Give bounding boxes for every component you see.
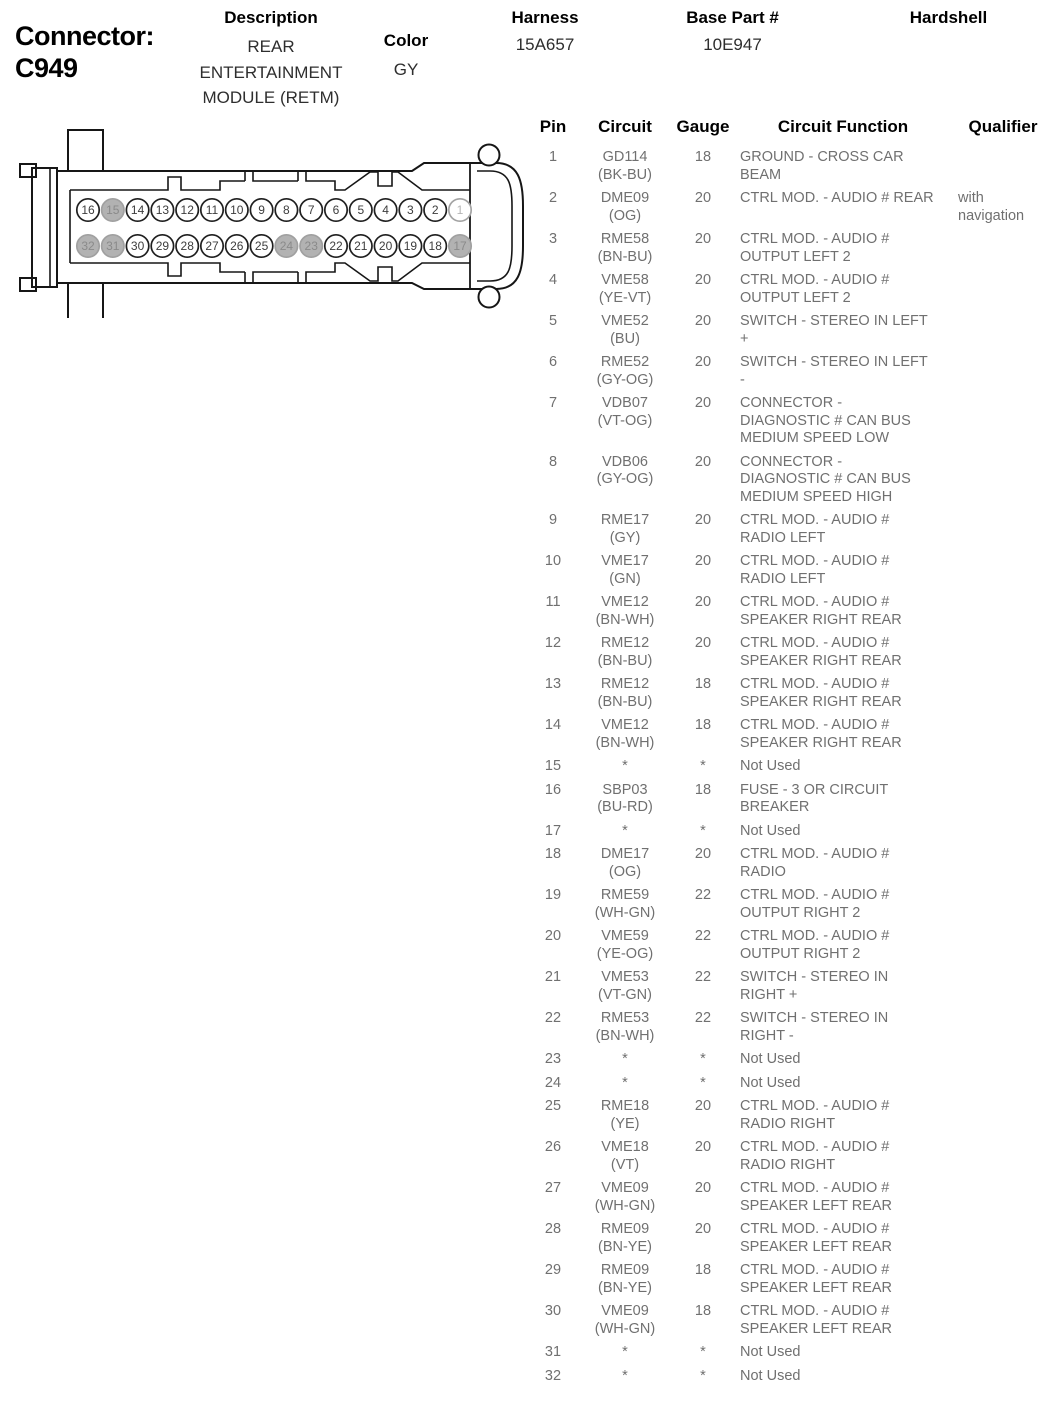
pin-cell: 27 bbox=[528, 1177, 578, 1218]
function-cell: CONNECTOR - DIAGNOSTIC # CAN BUS MEDIUM … bbox=[734, 451, 952, 510]
qualifier-cell bbox=[952, 310, 1054, 351]
gauge-cell: * bbox=[672, 1048, 734, 1072]
gauge-cell: 20 bbox=[672, 269, 734, 310]
function-cell: CTRL MOD. - AUDIO # SPEAKER RIGHT REAR bbox=[734, 714, 952, 755]
qualifier-cell bbox=[952, 1136, 1054, 1177]
function-cell: FUSE - 3 OR CIRCUIT BREAKER bbox=[734, 779, 952, 820]
gauge-cell: 18 bbox=[672, 714, 734, 755]
gauge-cell: 20 bbox=[672, 1177, 734, 1218]
pin-7-label: 7 bbox=[308, 203, 315, 217]
connector-drawing: 1615141312111098765432132313029282726252… bbox=[0, 118, 530, 320]
gauge-cell: 18 bbox=[672, 146, 734, 187]
table-row: 24**Not Used bbox=[528, 1072, 1054, 1096]
table-header-row: Pin Circuit Gauge Circuit Function Quali… bbox=[528, 117, 1054, 146]
table-row: 28RME09 (BN-YE)20CTRL MOD. - AUDIO # SPE… bbox=[528, 1218, 1054, 1259]
function-cell: CTRL MOD. - AUDIO # RADIO bbox=[734, 843, 952, 884]
table-row: 30VME09 (WH-GN)18CTRL MOD. - AUDIO # SPE… bbox=[528, 1300, 1054, 1341]
qualifier-cell bbox=[952, 591, 1054, 632]
pin-cell: 6 bbox=[528, 351, 578, 392]
gauge-cell: 20 bbox=[672, 1095, 734, 1136]
pin-cell: 7 bbox=[528, 392, 578, 451]
pin-29-label: 29 bbox=[156, 239, 170, 253]
pin-cell: 32 bbox=[528, 1365, 578, 1389]
pin-cell: 20 bbox=[528, 925, 578, 966]
function-cell: CTRL MOD. - AUDIO # OUTPUT LEFT 2 bbox=[734, 228, 952, 269]
qualifier-cell bbox=[952, 1218, 1054, 1259]
pin-cell: 15 bbox=[528, 755, 578, 779]
table-row: 17**Not Used bbox=[528, 820, 1054, 844]
circuit-cell: * bbox=[578, 1341, 672, 1365]
pin-6-label: 6 bbox=[333, 203, 340, 217]
pin-3-label: 3 bbox=[407, 203, 414, 217]
circuit-cell: VME17 (GN) bbox=[578, 550, 672, 591]
pin-cell: 23 bbox=[528, 1048, 578, 1072]
lower-tab bbox=[68, 283, 103, 318]
circuit-cell: VME09 (WH-GN) bbox=[578, 1300, 672, 1341]
gauge-cell: 20 bbox=[672, 228, 734, 269]
pin-26-label: 26 bbox=[230, 239, 244, 253]
gauge-cell: * bbox=[672, 755, 734, 779]
table-row: 8VDB06 (GY-OG)20CONNECTOR - DIAGNOSTIC #… bbox=[528, 451, 1054, 510]
qualifier-cell bbox=[952, 925, 1054, 966]
gauge-cell: 20 bbox=[672, 392, 734, 451]
function-cell: CONNECTOR - DIAGNOSTIC # CAN BUS MEDIUM … bbox=[734, 392, 952, 451]
gauge-cell: 22 bbox=[672, 1007, 734, 1048]
function-cell: SWITCH - STEREO IN LEFT + bbox=[734, 310, 952, 351]
table-row: 16SBP03 (BU-RD)18FUSE - 3 OR CIRCUIT BRE… bbox=[528, 779, 1054, 820]
pin-24-label: 24 bbox=[280, 239, 294, 253]
pin-8-label: 8 bbox=[283, 203, 290, 217]
table-row: 6RME52 (GY-OG)20SWITCH - STEREO IN LEFT … bbox=[528, 351, 1054, 392]
circuit-cell: * bbox=[578, 1072, 672, 1096]
qualifier-cell bbox=[952, 509, 1054, 550]
table-row: 10VME17 (GN)20CTRL MOD. - AUDIO # RADIO … bbox=[528, 550, 1054, 591]
pin-cell: 28 bbox=[528, 1218, 578, 1259]
connector-outline bbox=[20, 130, 523, 318]
function-cell: CTRL MOD. - AUDIO # SPEAKER RIGHT REAR bbox=[734, 673, 952, 714]
color-value: GY bbox=[376, 60, 436, 80]
inner-top-edge bbox=[70, 171, 470, 190]
description-label: Description bbox=[176, 8, 366, 28]
function-cell: CTRL MOD. - AUDIO # RADIO RIGHT bbox=[734, 1136, 952, 1177]
qualifier-cell bbox=[952, 1007, 1054, 1048]
circuit-cell: RME58 (BN-BU) bbox=[578, 228, 672, 269]
table-row: 22RME53 (BN-WH)22SWITCH - STEREO IN RIGH… bbox=[528, 1007, 1054, 1048]
table-row: 9RME17 (GY)20CTRL MOD. - AUDIO # RADIO L… bbox=[528, 509, 1054, 550]
circuit-cell: * bbox=[578, 1365, 672, 1389]
circuit-cell: RME53 (BN-WH) bbox=[578, 1007, 672, 1048]
gauge-cell: 20 bbox=[672, 351, 734, 392]
table-row: 29RME09 (BN-YE)18CTRL MOD. - AUDIO # SPE… bbox=[528, 1259, 1054, 1300]
qualifier-cell bbox=[952, 351, 1054, 392]
function-cell: CTRL MOD. - AUDIO # RADIO LEFT bbox=[734, 509, 952, 550]
function-cell: Not Used bbox=[734, 1341, 952, 1365]
pin-32-label: 32 bbox=[81, 239, 95, 253]
pin-cell: 9 bbox=[528, 509, 578, 550]
pin-cell: 18 bbox=[528, 843, 578, 884]
circuit-cell: VME52 (BU) bbox=[578, 310, 672, 351]
pin-16-label: 16 bbox=[81, 203, 95, 217]
table-row: 13RME12 (BN-BU)18CTRL MOD. - AUDIO # SPE… bbox=[528, 673, 1054, 714]
table-row: 23**Not Used bbox=[528, 1048, 1054, 1072]
function-cell: CTRL MOD. - AUDIO # SPEAKER LEFT REAR bbox=[734, 1300, 952, 1341]
qualifier-cell bbox=[952, 1072, 1054, 1096]
qualifier-cell bbox=[952, 1095, 1054, 1136]
gauge-cell: 18 bbox=[672, 1259, 734, 1300]
gauge-cell: 20 bbox=[672, 632, 734, 673]
pin-cell: 1 bbox=[528, 146, 578, 187]
gauge-cell: 20 bbox=[672, 310, 734, 351]
table-row: 32**Not Used bbox=[528, 1365, 1054, 1389]
circuit-cell: RME09 (BN-YE) bbox=[578, 1218, 672, 1259]
qualifier-cell bbox=[952, 451, 1054, 510]
pin-23-label: 23 bbox=[305, 239, 319, 253]
function-cell: Not Used bbox=[734, 1072, 952, 1096]
function-cell: CTRL MOD. - AUDIO # REAR bbox=[734, 187, 952, 228]
table-row: 19RME59 (WH-GN)22CTRL MOD. - AUDIO # OUT… bbox=[528, 884, 1054, 925]
pin-cell: 12 bbox=[528, 632, 578, 673]
gauge-cell: * bbox=[672, 1365, 734, 1389]
qualifier-cell bbox=[952, 269, 1054, 310]
gauge-cell: 20 bbox=[672, 591, 734, 632]
circuit-cell: VDB06 (GY-OG) bbox=[578, 451, 672, 510]
qualifier-cell bbox=[952, 146, 1054, 187]
qualifier-cell bbox=[952, 1259, 1054, 1300]
base-part-value: 10E947 bbox=[660, 35, 805, 55]
function-cell: SWITCH - STEREO IN RIGHT + bbox=[734, 966, 952, 1007]
pin-cell: 22 bbox=[528, 1007, 578, 1048]
circuit-cell: VME59 (YE-OG) bbox=[578, 925, 672, 966]
table-row: 4VME58 (YE-VT)20CTRL MOD. - AUDIO # OUTP… bbox=[528, 269, 1054, 310]
pin-field: 1615141312111098765432132313029282726252… bbox=[77, 199, 471, 257]
function-cell: CTRL MOD. - AUDIO # OUTPUT LEFT 2 bbox=[734, 269, 952, 310]
col-header-circuit: Circuit bbox=[578, 117, 672, 146]
gauge-cell: * bbox=[672, 820, 734, 844]
qualifier-cell bbox=[952, 1048, 1054, 1072]
pin-28-label: 28 bbox=[181, 239, 195, 253]
gauge-cell: 18 bbox=[672, 673, 734, 714]
pin-cell: 14 bbox=[528, 714, 578, 755]
qualifier-cell bbox=[952, 966, 1054, 1007]
table-row: 15**Not Used bbox=[528, 755, 1054, 779]
circuit-cell: RME59 (WH-GN) bbox=[578, 884, 672, 925]
circuit-cell: GD114 (BK-BU) bbox=[578, 146, 672, 187]
qualifier-cell bbox=[952, 843, 1054, 884]
gauge-cell: * bbox=[672, 1341, 734, 1365]
pin-cell: 17 bbox=[528, 820, 578, 844]
circuit-cell: VME53 (VT-GN) bbox=[578, 966, 672, 1007]
col-header-qualifier: Qualifier bbox=[952, 117, 1054, 146]
pin-cell: 24 bbox=[528, 1072, 578, 1096]
circuit-cell: * bbox=[578, 755, 672, 779]
left-bar bbox=[32, 168, 57, 287]
function-cell: CTRL MOD. - AUDIO # SPEAKER LEFT REAR bbox=[734, 1218, 952, 1259]
pin-21-label: 21 bbox=[354, 239, 368, 253]
qualifier-cell bbox=[952, 673, 1054, 714]
table-row: 5VME52 (BU)20SWITCH - STEREO IN LEFT + bbox=[528, 310, 1054, 351]
table-row: 31**Not Used bbox=[528, 1341, 1054, 1365]
qualifier-cell bbox=[952, 1177, 1054, 1218]
pin-15-label: 15 bbox=[106, 203, 120, 217]
pin-31-label: 31 bbox=[106, 239, 120, 253]
gauge-cell: 20 bbox=[672, 451, 734, 510]
pin-cell: 8 bbox=[528, 451, 578, 510]
gauge-cell: 18 bbox=[672, 779, 734, 820]
pin-cell: 26 bbox=[528, 1136, 578, 1177]
qualifier-cell bbox=[952, 820, 1054, 844]
pin-2-label: 2 bbox=[432, 203, 439, 217]
table-row: 18DME17 (OG)20CTRL MOD. - AUDIO # RADIO bbox=[528, 843, 1054, 884]
gauge-cell: 22 bbox=[672, 925, 734, 966]
connector-sheet: Connector: C949 Description REAR ENTERTA… bbox=[0, 0, 1054, 1406]
qualifier-cell bbox=[952, 1300, 1054, 1341]
pin-19-label: 19 bbox=[404, 239, 418, 253]
pin-cell: 11 bbox=[528, 591, 578, 632]
table-row: 12RME12 (BN-BU)20CTRL MOD. - AUDIO # SPE… bbox=[528, 632, 1054, 673]
body-outline bbox=[57, 163, 523, 289]
pin-20-label: 20 bbox=[379, 239, 393, 253]
pin-5-label: 5 bbox=[357, 203, 364, 217]
function-cell: GROUND - CROSS CAR BEAM bbox=[734, 146, 952, 187]
pin-cell: 3 bbox=[528, 228, 578, 269]
circuit-cell: RME09 (BN-YE) bbox=[578, 1259, 672, 1300]
hardshell-label: Hardshell bbox=[896, 8, 1001, 28]
harness-label: Harness bbox=[495, 8, 595, 28]
qualifier-cell: with navigation bbox=[952, 187, 1054, 228]
pinout-table: Pin Circuit Gauge Circuit Function Quali… bbox=[528, 117, 1054, 1388]
function-cell: CTRL MOD. - AUDIO # SPEAKER LEFT REAR bbox=[734, 1177, 952, 1218]
pin-18-label: 18 bbox=[429, 239, 443, 253]
table-row: 2DME09 (OG)20CTRL MOD. - AUDIO # REARwit… bbox=[528, 187, 1054, 228]
circuit-cell: RME17 (GY) bbox=[578, 509, 672, 550]
qualifier-cell bbox=[952, 779, 1054, 820]
qualifier-cell bbox=[952, 550, 1054, 591]
cap-hole-bottom bbox=[479, 287, 500, 308]
pin-cell: 13 bbox=[528, 673, 578, 714]
qualifier-cell bbox=[952, 1341, 1054, 1365]
pin-cell: 10 bbox=[528, 550, 578, 591]
upper-tab bbox=[68, 130, 103, 171]
function-cell: Not Used bbox=[734, 1048, 952, 1072]
qualifier-cell bbox=[952, 884, 1054, 925]
pin-17-label: 17 bbox=[453, 239, 467, 253]
gauge-cell: 20 bbox=[672, 1136, 734, 1177]
circuit-cell: VME58 (YE-VT) bbox=[578, 269, 672, 310]
gauge-cell: * bbox=[672, 1072, 734, 1096]
qualifier-cell bbox=[952, 392, 1054, 451]
pin-4-label: 4 bbox=[382, 203, 389, 217]
table-row: 3RME58 (BN-BU)20CTRL MOD. - AUDIO # OUTP… bbox=[528, 228, 1054, 269]
pin-cell: 29 bbox=[528, 1259, 578, 1300]
pin-25-label: 25 bbox=[255, 239, 269, 253]
pin-9-label: 9 bbox=[258, 203, 265, 217]
connector-diagram: 1615141312111098765432132313029282726252… bbox=[0, 118, 530, 320]
function-cell: CTRL MOD. - AUDIO # RADIO LEFT bbox=[734, 550, 952, 591]
pin-14-label: 14 bbox=[131, 203, 145, 217]
qualifier-cell bbox=[952, 1365, 1054, 1389]
gauge-cell: 20 bbox=[672, 509, 734, 550]
qualifier-cell bbox=[952, 228, 1054, 269]
cap-hole-top bbox=[479, 145, 500, 166]
pin-10-label: 10 bbox=[230, 203, 244, 217]
gauge-cell: 20 bbox=[672, 187, 734, 228]
table-row: 7VDB07 (VT-OG)20CONNECTOR - DIAGNOSTIC #… bbox=[528, 392, 1054, 451]
left-clip-top bbox=[20, 164, 36, 177]
qualifier-cell bbox=[952, 632, 1054, 673]
description-value: REAR ENTERTAINMENT MODULE (RETM) bbox=[160, 34, 382, 111]
table-row: 20VME59 (YE-OG)22CTRL MOD. - AUDIO # OUT… bbox=[528, 925, 1054, 966]
pin-cell: 5 bbox=[528, 310, 578, 351]
gauge-cell: 20 bbox=[672, 843, 734, 884]
circuit-cell: * bbox=[578, 1048, 672, 1072]
pin-30-label: 30 bbox=[131, 239, 145, 253]
circuit-cell: VDB07 (VT-OG) bbox=[578, 392, 672, 451]
circuit-cell: RME52 (GY-OG) bbox=[578, 351, 672, 392]
col-header-gauge: Gauge bbox=[672, 117, 734, 146]
col-header-function: Circuit Function bbox=[734, 117, 952, 146]
circuit-cell: VME09 (WH-GN) bbox=[578, 1177, 672, 1218]
pin-cell: 30 bbox=[528, 1300, 578, 1341]
pin-13-label: 13 bbox=[156, 203, 170, 217]
table-row: 26VME18 (VT)20CTRL MOD. - AUDIO # RADIO … bbox=[528, 1136, 1054, 1177]
inner-bottom-edge bbox=[70, 263, 470, 283]
qualifier-cell bbox=[952, 755, 1054, 779]
table-row: 14VME12 (BN-WH)18CTRL MOD. - AUDIO # SPE… bbox=[528, 714, 1054, 755]
pin-27-label: 27 bbox=[205, 239, 219, 253]
function-cell: Not Used bbox=[734, 820, 952, 844]
circuit-cell: VME18 (VT) bbox=[578, 1136, 672, 1177]
circuit-cell: DME17 (OG) bbox=[578, 843, 672, 884]
base-part-label: Base Part # bbox=[660, 8, 805, 28]
pin-cell: 16 bbox=[528, 779, 578, 820]
qualifier-cell bbox=[952, 714, 1054, 755]
table-row: 27VME09 (WH-GN)20CTRL MOD. - AUDIO # SPE… bbox=[528, 1177, 1054, 1218]
function-cell: CTRL MOD. - AUDIO # OUTPUT RIGHT 2 bbox=[734, 925, 952, 966]
function-cell: CTRL MOD. - AUDIO # SPEAKER RIGHT REAR bbox=[734, 632, 952, 673]
gauge-cell: 22 bbox=[672, 884, 734, 925]
gauge-cell: 22 bbox=[672, 966, 734, 1007]
connector-id: C949 bbox=[15, 53, 78, 83]
circuit-cell: DME09 (OG) bbox=[578, 187, 672, 228]
circuit-cell: RME18 (YE) bbox=[578, 1095, 672, 1136]
table-row: 11VME12 (BN-WH)20CTRL MOD. - AUDIO # SPE… bbox=[528, 591, 1054, 632]
pin-cell: 25 bbox=[528, 1095, 578, 1136]
pin-11-label: 11 bbox=[206, 203, 219, 217]
function-cell: CTRL MOD. - AUDIO # OUTPUT RIGHT 2 bbox=[734, 884, 952, 925]
pin-cell: 31 bbox=[528, 1341, 578, 1365]
function-cell: SWITCH - STEREO IN RIGHT - bbox=[734, 1007, 952, 1048]
table-row: 1GD114 (BK-BU)18GROUND - CROSS CAR BEAM bbox=[528, 146, 1054, 187]
connector-title: Connector: C949 bbox=[15, 20, 154, 84]
gauge-cell: 18 bbox=[672, 1300, 734, 1341]
circuit-cell: * bbox=[578, 820, 672, 844]
connector-label: Connector: bbox=[15, 21, 154, 51]
pin-cell: 19 bbox=[528, 884, 578, 925]
pin-cell: 2 bbox=[528, 187, 578, 228]
pin-cell: 4 bbox=[528, 269, 578, 310]
color-label: Color bbox=[376, 31, 436, 51]
gauge-cell: 20 bbox=[672, 550, 734, 591]
pin-1-label: 1 bbox=[457, 203, 464, 217]
pin-cell: 21 bbox=[528, 966, 578, 1007]
pin-12-label: 12 bbox=[181, 203, 195, 217]
function-cell: CTRL MOD. - AUDIO # RADIO RIGHT bbox=[734, 1095, 952, 1136]
table-row: 25RME18 (YE)20CTRL MOD. - AUDIO # RADIO … bbox=[528, 1095, 1054, 1136]
harness-value: 15A657 bbox=[495, 35, 595, 55]
function-cell: CTRL MOD. - AUDIO # SPEAKER RIGHT REAR bbox=[734, 591, 952, 632]
cap-inner-line bbox=[477, 171, 512, 281]
table-row: 21VME53 (VT-GN)22SWITCH - STEREO IN RIGH… bbox=[528, 966, 1054, 1007]
circuit-cell: VME12 (BN-WH) bbox=[578, 714, 672, 755]
pin-22-label: 22 bbox=[329, 239, 343, 253]
circuit-cell: RME12 (BN-BU) bbox=[578, 673, 672, 714]
circuit-cell: SBP03 (BU-RD) bbox=[578, 779, 672, 820]
function-cell: Not Used bbox=[734, 1365, 952, 1389]
col-header-pin: Pin bbox=[528, 117, 578, 146]
function-cell: Not Used bbox=[734, 755, 952, 779]
function-cell: SWITCH - STEREO IN LEFT - bbox=[734, 351, 952, 392]
gauge-cell: 20 bbox=[672, 1218, 734, 1259]
function-cell: CTRL MOD. - AUDIO # SPEAKER LEFT REAR bbox=[734, 1259, 952, 1300]
circuit-cell: VME12 (BN-WH) bbox=[578, 591, 672, 632]
left-clip-bottom bbox=[20, 278, 36, 291]
circuit-cell: RME12 (BN-BU) bbox=[578, 632, 672, 673]
